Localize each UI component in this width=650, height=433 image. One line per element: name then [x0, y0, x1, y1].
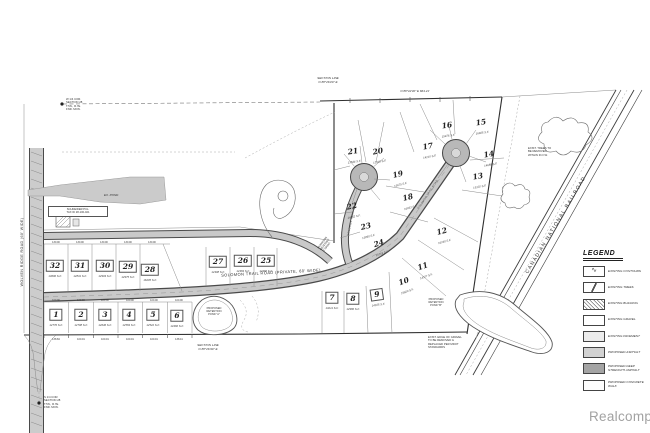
- lot-number: 26: [234, 255, 252, 267]
- dimension-text: 100.00: [77, 299, 85, 302]
- lot-label-28: 2816205 S.F.: [141, 259, 159, 282]
- label-pond-b: PROPOSED RETENTION POND "B": [418, 298, 454, 308]
- lot-label-8: 812980 S.F.: [346, 288, 359, 311]
- legend-swatch-mid: [583, 347, 605, 358]
- lot-area: 12708 S.F.: [74, 322, 87, 326]
- lot-label-2: 212708 S.F.: [74, 304, 87, 327]
- lot-number: 25: [257, 255, 275, 267]
- lot-number: 28: [141, 264, 159, 276]
- lot-number: 16: [441, 121, 452, 130]
- dimension-text: 100.00: [126, 299, 134, 302]
- lot-label-4: 412584 S.F.: [122, 304, 135, 327]
- lot-label-31: 3112831 S.F.: [71, 255, 89, 278]
- lot-number: 2: [74, 309, 87, 321]
- lot-label-7: 713211 S.F.: [325, 287, 338, 310]
- lot-number: 3: [98, 309, 111, 321]
- lot-number: 30: [96, 260, 114, 272]
- legend-swatch-plain: [583, 315, 605, 326]
- north-boundary: [320, 97, 502, 101]
- cul-de-sac-bulb-west: [351, 164, 378, 191]
- annotation-parcel-label: SCHNEIDER PCL. TAX ID 28-100-021: [48, 206, 108, 217]
- legend-item: PROPOSED DEEP STRENGTH ASPHALT: [583, 363, 649, 374]
- lot-number: 24: [373, 238, 385, 248]
- south-boundary: [24, 332, 467, 335]
- lot-number: 17: [422, 142, 434, 151]
- lot-label-3: 312646 S.F.: [98, 304, 111, 327]
- lot-number: 6: [170, 310, 183, 322]
- lot-number: 19: [392, 170, 404, 180]
- legend-item: EXISTING BUILDING: [583, 299, 649, 310]
- site-plan-page: W 1/4 COR. SECTION 28 T.5N., R.7E. FND. …: [0, 0, 650, 433]
- cul-de-sac-bulb-east: [443, 140, 470, 167]
- dimension-text: 130.00: [148, 241, 156, 244]
- section-line-dashed: [63, 102, 320, 104]
- legend-item-label: PROPOSED DEEP STRENGTH ASPHALT: [608, 365, 640, 372]
- loop-driveway: [260, 180, 296, 237]
- lot-area: 12831 S.F.: [71, 273, 89, 277]
- dimension-text: 100.00: [52, 299, 60, 302]
- label-existing-pond: EX. POND: [104, 194, 118, 198]
- annotation-railroad-note: EXIST. TREES TO BE REMOVED WITHIN R.O.W.: [528, 147, 551, 157]
- lot-number: 11: [417, 261, 429, 272]
- lot-area: 12460 S.F.: [257, 268, 275, 272]
- legend-title: LEGEND: [583, 250, 623, 261]
- legend-swatch-hatch: [583, 299, 605, 310]
- lot-area: 12646 S.F.: [98, 322, 111, 326]
- lot-label-32: 3213690 S.F.: [46, 255, 64, 278]
- legend-item-label: EXISTING TREES: [608, 286, 634, 290]
- lot-number: 29: [119, 261, 137, 273]
- realcomp-watermark: Realcomp: [589, 409, 650, 424]
- lot-number: 22: [346, 202, 358, 212]
- legend-item-label: PROPOSED CONCRETE WALK: [608, 381, 649, 388]
- legend-item: EXISTING TREES: [583, 282, 649, 293]
- legend-swatch-walk: [583, 380, 605, 391]
- legend-item-label: EXISTING GRAVEL: [608, 318, 636, 322]
- lot-label-26: 2612384 S.F.: [234, 250, 252, 273]
- existing-pond: [28, 177, 166, 204]
- lot-number: 5: [146, 309, 159, 321]
- annotation-west-corner: W 1/4 COR. SECTION 28 T.5N., R.7E. FND. …: [66, 98, 82, 112]
- label-north-bearing: N 88°42'30" E 664.21': [355, 90, 475, 94]
- lot-label-5: 512522 S.F.: [146, 304, 159, 327]
- label-wolven-ridge-road: WOLVEN RIDGE ROAD (60' WIDE): [20, 197, 24, 307]
- lot-number: 20: [372, 147, 384, 156]
- legend-item: ∿EXISTING CONTOURS: [583, 266, 649, 277]
- lot-label-30: 3012903 S.F.: [96, 255, 114, 278]
- dimension-text: 100.01: [101, 338, 109, 341]
- legend-item: EXISTING GRAVEL: [583, 315, 649, 326]
- annotation-section-top: SECTION LINE N 88°26'20" E: [300, 77, 356, 85]
- lot-area: 12522 S.F.: [146, 322, 159, 326]
- legend-items: ∿EXISTING CONTOURSEXISTING TREESEXISTING…: [583, 266, 649, 390]
- lot-number: 12: [436, 227, 448, 237]
- legend-swatch-dark: [583, 363, 605, 374]
- lot-label-29: 2912975 S.F.: [119, 256, 137, 279]
- retention-pond-b: [455, 292, 552, 354]
- lot-area: 13690 S.F.: [46, 273, 64, 277]
- dimension-text: 100.01: [77, 338, 85, 341]
- lot-label-1: 112770 S.F.: [49, 304, 62, 327]
- lot-label-25: 2512460 S.F.: [257, 250, 275, 273]
- south-quarter-corner-marker: [37, 401, 40, 404]
- lot-number: 23: [360, 222, 372, 232]
- dimension-text: 100.00: [101, 299, 109, 302]
- lot-area: 12980 S.F.: [346, 306, 359, 310]
- lot-number: 10: [398, 276, 410, 287]
- dimension-text: 130.00: [100, 241, 108, 244]
- legend-item-label: EXISTING CONTOURS: [608, 270, 641, 274]
- dimension-text: 130.00: [52, 241, 60, 244]
- legend-item-label: PROPOSED ASPHALT: [608, 351, 640, 355]
- lot-number: 21: [347, 147, 358, 156]
- lot-area: 16205 S.F.: [141, 277, 159, 281]
- existing-building: [56, 216, 79, 227]
- dimension-text: 100.00: [175, 299, 183, 302]
- annotation-section-bottom: SECTION LINE N 88°26'40" E: [180, 344, 236, 352]
- lot-number: 27: [209, 256, 227, 268]
- lot-number: 13: [472, 172, 484, 181]
- dimension-text: 138.41: [175, 338, 183, 341]
- dimension-text: 100.00: [150, 299, 158, 302]
- legend-item-label: EXISTING BUILDING: [608, 302, 638, 306]
- lot-number: 15: [475, 118, 486, 127]
- dimension-text: 130.00: [76, 241, 84, 244]
- lot-label-27: 2712308 S.F.: [209, 251, 227, 274]
- lot-number: 7: [325, 292, 338, 304]
- lot-number: 9: [370, 288, 385, 301]
- dimension-text: 100.01: [150, 338, 158, 341]
- tree-clusters: [501, 117, 592, 208]
- lot-area: 12770 S.F.: [49, 322, 62, 326]
- annotation-south-corner: S 1/4 COR. SECTION 28 T.5N., R.7E. FND. …: [44, 396, 60, 410]
- lot-number: 1: [49, 309, 62, 321]
- legend: LEGEND ∿EXISTING CONTOURSEXISTING TREESE…: [583, 250, 649, 391]
- lot-number: 4: [122, 309, 135, 321]
- lot-number: 18: [402, 193, 414, 203]
- lot-area: 12975 S.F.: [119, 274, 137, 278]
- lot-area: 14460 S.F.: [170, 323, 183, 327]
- legend-swatch-light: [583, 331, 605, 342]
- label-pond-a: PROPOSED RETENTION POND "A": [196, 307, 232, 317]
- legend-item: PROPOSED ASPHALT: [583, 347, 649, 358]
- legend-item: EXISTING PAVEMENT: [583, 331, 649, 342]
- lot-area: 12584 S.F.: [122, 322, 135, 326]
- west-quarter-corner-marker: [60, 102, 63, 105]
- legend-swatch-contours: ∿: [583, 266, 605, 277]
- dimension-text: 100.01: [126, 338, 134, 341]
- dimension-text: 138.84: [52, 338, 60, 341]
- lot-number: 32: [46, 260, 64, 272]
- lot-area: 12308 S.F.: [209, 269, 227, 273]
- legend-swatch-slash: [583, 282, 605, 293]
- lot-number: 14: [483, 150, 495, 159]
- lot-label-6: 614460 S.F.: [170, 305, 183, 328]
- legend-item: PROPOSED CONCRETE WALK: [583, 380, 649, 391]
- dimension-text: 130.00: [124, 241, 132, 244]
- lot-number: 8: [346, 293, 359, 305]
- lot-area: 13211 S.F.: [325, 305, 338, 309]
- lot-number: 31: [71, 260, 89, 272]
- lot-area: 12903 S.F.: [96, 273, 114, 277]
- annotation-gravel-note: EXIST. EDGE OF GRAVEL TO BE REMOVED & RE…: [428, 336, 462, 350]
- legend-item-label: EXISTING PAVEMENT: [608, 335, 640, 339]
- lot-area: 12384 S.F.: [234, 268, 252, 272]
